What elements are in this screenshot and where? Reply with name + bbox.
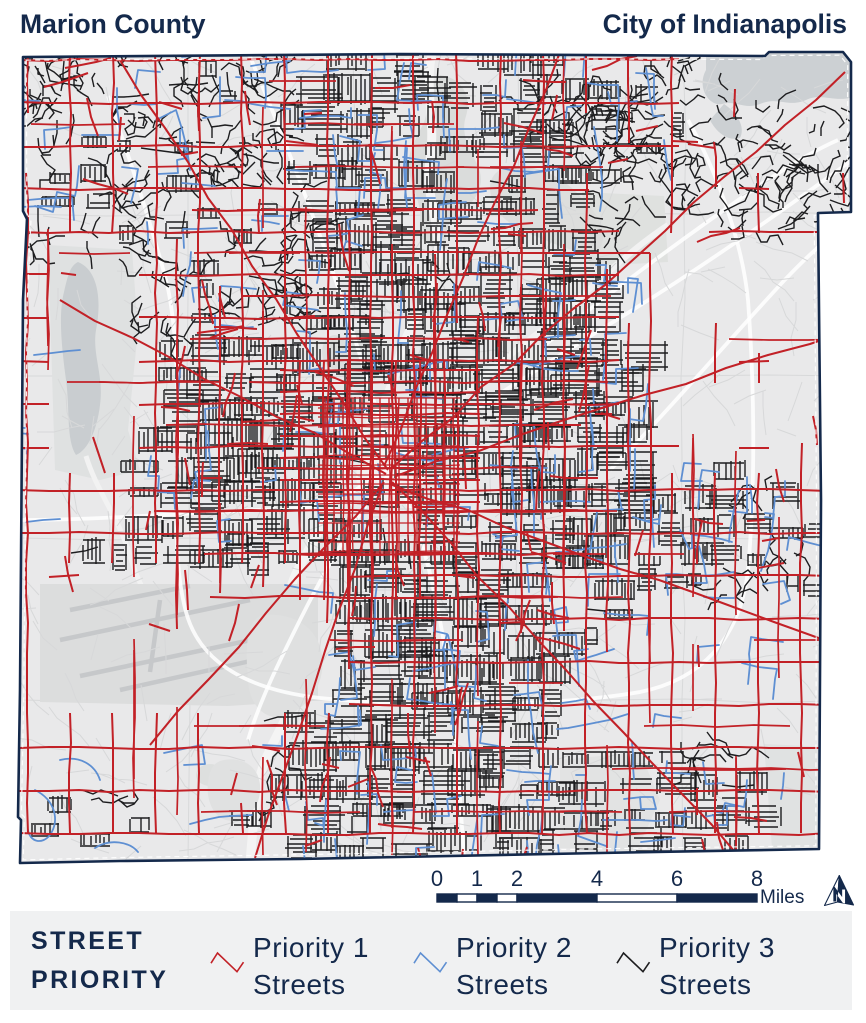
svg-text:4: 4 <box>591 866 603 891</box>
svg-text:2: 2 <box>511 866 523 891</box>
svg-text:1: 1 <box>471 866 483 891</box>
svg-text:0: 0 <box>431 866 443 891</box>
svg-text:6: 6 <box>671 866 683 891</box>
svg-text:Miles: Miles <box>760 887 804 908</box>
